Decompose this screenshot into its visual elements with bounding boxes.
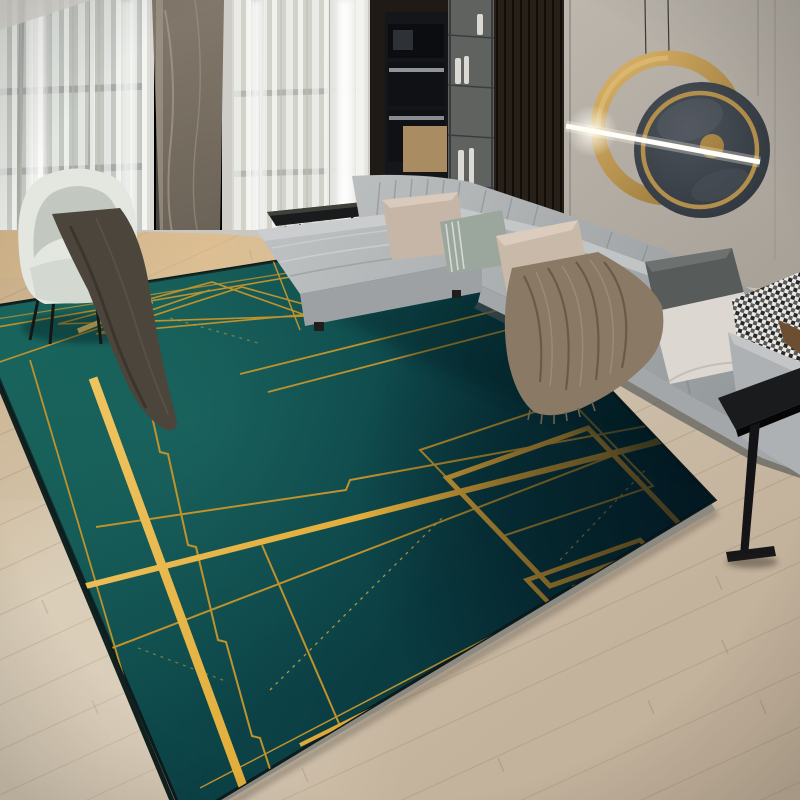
vignette (0, 0, 800, 800)
screenshot-root (0, 0, 800, 800)
living-room-photo (0, 0, 800, 800)
